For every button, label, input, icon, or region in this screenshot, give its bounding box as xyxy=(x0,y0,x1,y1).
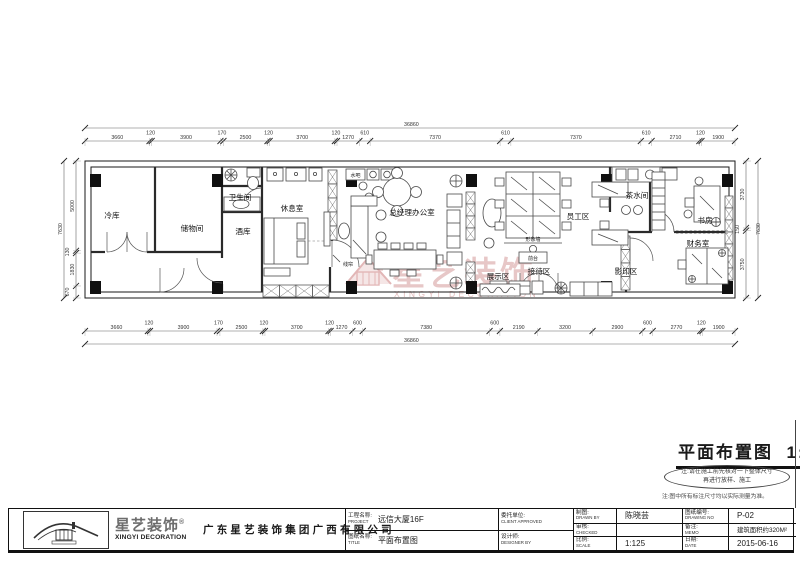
svg-text:36860: 36860 xyxy=(404,122,419,128)
drawing-title-cell: 图纸名称:TITLE 平面布置图 xyxy=(346,530,498,551)
no-label-cell: 图纸编号:DRAWING NO xyxy=(682,509,728,523)
memo-label-cell: 备注:MEMO xyxy=(682,523,728,537)
room-label-reception-area: 接待区 xyxy=(528,266,551,276)
checked-label-cell: 审核:CHECKED xyxy=(574,523,616,537)
scale-value: 1:125 xyxy=(625,539,645,548)
svg-text:170: 170 xyxy=(218,131,227,137)
dimensions-top: 3660120390017025001203700120127061073706… xyxy=(82,122,738,146)
memo-label-en: MEMO xyxy=(685,531,699,536)
svg-text:3700: 3700 xyxy=(296,135,308,141)
scale-value-cell: 1:125 xyxy=(616,536,682,550)
construction-note: 注:请在施工前先核对一下整体尺寸 再进行放样、施工 xyxy=(664,465,790,489)
scale-label-en: SCALE xyxy=(576,544,590,549)
toilet xyxy=(247,168,260,190)
brand-en: XINGYI DECORATION xyxy=(115,535,201,542)
date-label-cell: 日期:DATE xyxy=(682,536,728,550)
drawn-label-cell: 制图:DRAWN BY xyxy=(574,509,616,523)
room-label-storage: 储物间 xyxy=(181,223,204,233)
construction-note-line1: 注:请在施工前先核对一下整体尺寸 xyxy=(669,468,785,477)
room-label-tea-room: 茶水间 xyxy=(626,190,649,200)
svg-text:2900: 2900 xyxy=(612,325,624,331)
svg-text:170: 170 xyxy=(214,321,223,327)
svg-text:120: 120 xyxy=(145,321,154,327)
svg-text:2710: 2710 xyxy=(670,135,682,141)
scale-label-cell: 比例:SCALE xyxy=(574,536,616,550)
display-shelf xyxy=(480,284,520,296)
fan-icon xyxy=(555,282,567,294)
room-label-display-area: 展示区 xyxy=(487,272,510,281)
sheet-title-scale: 1:125 xyxy=(786,443,800,462)
bookshelf xyxy=(652,172,665,230)
tea-counter xyxy=(612,167,677,182)
label-water-bar: 水吧 xyxy=(350,172,360,179)
svg-text:3660: 3660 xyxy=(111,135,123,141)
svg-text:7630: 7630 xyxy=(58,223,64,235)
svg-text:3660: 3660 xyxy=(111,325,123,331)
svg-text:7370: 7370 xyxy=(570,135,582,141)
title-block-meta-section: 制图:DRAWN BY 陈晓芸 图纸编号:DRAWING NO P-02 审核:… xyxy=(573,509,795,550)
drawing-sheet: { "sheet": { "drawing_title": "平面布置图", "… xyxy=(0,0,800,564)
designer-label-en: DESIGNER BY xyxy=(501,541,531,546)
shower-light-icon xyxy=(225,169,237,181)
svg-text:120: 120 xyxy=(259,321,268,327)
dimensions-left: 500013018306707630 xyxy=(58,158,81,301)
svg-text:2770: 2770 xyxy=(671,325,683,331)
dimension-note: 注:图中所有标注尺寸均以实际测量为准。 xyxy=(662,491,768,500)
no-value-cell: P-02 xyxy=(728,509,796,523)
company-logo-icon xyxy=(23,511,109,549)
room-label-finance: 财务室 xyxy=(687,238,710,248)
svg-text:2500: 2500 xyxy=(240,135,252,141)
svg-text:600: 600 xyxy=(490,321,499,327)
sheet-border xyxy=(795,420,796,508)
memo-value: 建筑面积约320M² xyxy=(737,525,787,534)
room-label-wine-cellar: 酒库 xyxy=(235,226,251,236)
label-image-wall: 形象墙 xyxy=(525,236,540,243)
checked-label-en: CHECKED xyxy=(576,531,597,536)
svg-text:5000: 5000 xyxy=(70,200,76,212)
designer-cell: 设计师:DESIGNER BY xyxy=(498,530,574,551)
brand-reg-mark: ® xyxy=(179,519,185,526)
svg-text:1270: 1270 xyxy=(336,325,348,331)
room-label-cold-storage: 冷库 xyxy=(104,210,120,220)
project-label-en: PROJECT xyxy=(348,520,372,525)
drawing-title-label-en: TITLE xyxy=(348,541,372,546)
svg-text:1830: 1830 xyxy=(70,264,76,276)
svg-text:3900: 3900 xyxy=(180,135,192,141)
brand-wordmark: 星艺装饰® XINGYI DECORATION xyxy=(115,518,201,542)
svg-text:120: 120 xyxy=(146,131,155,137)
bed xyxy=(264,212,330,276)
construction-note-line2: 再进行放样、施工 xyxy=(669,477,785,486)
svg-text:2190: 2190 xyxy=(513,325,525,331)
svg-text:120: 120 xyxy=(332,131,341,137)
svg-text:610: 610 xyxy=(642,131,651,137)
date-value: 2015-06-16 xyxy=(737,539,778,548)
svg-text:1900: 1900 xyxy=(713,325,725,331)
memo-value-cell: 建筑面积约320M² xyxy=(728,523,796,537)
svg-text:3700: 3700 xyxy=(291,325,303,331)
drawing-title-value: 平面布置图 xyxy=(378,535,418,546)
svg-text:3200: 3200 xyxy=(559,325,571,331)
svg-text:670: 670 xyxy=(65,288,71,297)
drawn-value: 陈晓芸 xyxy=(625,510,649,521)
svg-text:3730: 3730 xyxy=(740,189,746,201)
svg-text:7370: 7370 xyxy=(429,135,441,141)
svg-text:36860: 36860 xyxy=(404,338,419,344)
svg-text:3900: 3900 xyxy=(178,325,190,331)
room-label-rest-room: 休息室 xyxy=(281,203,304,213)
svg-text:610: 610 xyxy=(360,131,369,137)
svg-text:120: 120 xyxy=(696,131,705,137)
svg-text:120: 120 xyxy=(264,131,273,137)
dimensions-bottom: 3660120390017025001203700120127060073806… xyxy=(82,321,738,348)
svg-text:3750: 3750 xyxy=(740,258,746,270)
client-label-en: CLIENT APPROVED xyxy=(501,520,542,525)
svg-text:130: 130 xyxy=(65,247,71,256)
date-label-en: DATE xyxy=(685,544,698,549)
svg-text:600: 600 xyxy=(353,321,362,327)
brand-cn: 星艺装饰 xyxy=(115,517,179,534)
client-cell: 委托单位:CLIENT APPROVED xyxy=(498,509,574,530)
room-label-bathroom: 卫生间 xyxy=(229,192,252,202)
svg-text:120: 120 xyxy=(697,321,706,327)
label-front-desk: 前台 xyxy=(528,255,538,262)
title-block-project-section: 工程名称:PROJECT 远信大厦16F 委托单位:CLIENT APPROVE… xyxy=(345,509,573,550)
checked-value-cell xyxy=(616,523,682,537)
svg-text:150: 150 xyxy=(735,225,741,234)
room-label-staff-area: 员工区 xyxy=(567,212,590,221)
svg-text:120: 120 xyxy=(325,321,334,327)
waiting-sofa xyxy=(570,282,612,296)
sheet-title-text: 平面布置图 xyxy=(678,443,773,462)
workstation-cluster xyxy=(495,172,571,238)
svg-text:7380: 7380 xyxy=(420,325,432,331)
svg-text:600: 600 xyxy=(643,321,652,327)
project-value: 远信大厦16F xyxy=(378,514,424,525)
drawing-no-label-en: DRAWING NO xyxy=(685,516,714,521)
room-label-copy-area: 影印区 xyxy=(615,266,638,276)
wardrobe xyxy=(267,168,322,181)
label-curtain: 线帘 xyxy=(343,261,353,268)
floor-plan-drawing: 星艺装饰 ® XINGYI DECORATION xyxy=(0,0,800,510)
drawn-value-cell: 陈晓芸 xyxy=(616,509,682,523)
room-label-gm-office: 总经理办公室 xyxy=(389,207,435,217)
date-value-cell: 2015-06-16 xyxy=(728,536,796,550)
dimensions-right: 373015037507630 xyxy=(735,158,762,301)
project-cell: 工程名称:PROJECT 远信大厦16F xyxy=(346,509,498,530)
svg-text:1270: 1270 xyxy=(342,135,354,141)
drawing-no-value: P-02 xyxy=(737,511,754,520)
svg-text:610: 610 xyxy=(501,131,510,137)
drawn-label-en: DRAWN BY xyxy=(576,516,600,521)
room-label-study: 书房 xyxy=(697,215,712,225)
svg-text:2500: 2500 xyxy=(236,325,248,331)
title-block: 星艺装饰® XINGYI DECORATION 广东星艺装饰集团广西有限公司 工… xyxy=(8,508,794,553)
svg-text:7630: 7630 xyxy=(756,223,762,235)
title-block-company-section: 星艺装饰® XINGYI DECORATION 广东星艺装饰集团广西有限公司 xyxy=(9,509,345,550)
svg-text:1900: 1900 xyxy=(712,135,724,141)
